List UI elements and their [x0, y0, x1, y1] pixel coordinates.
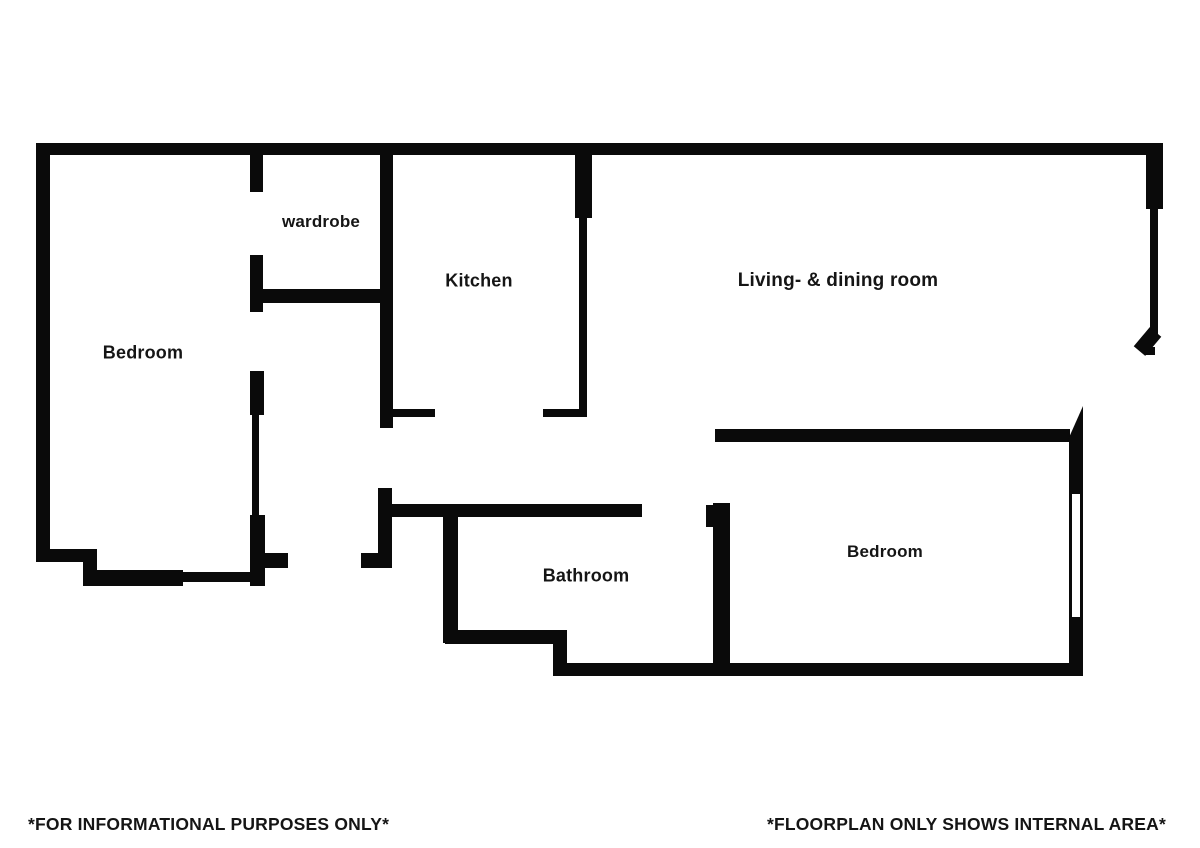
disclaimer-left: *FOR INFORMATIONAL PURPOSES ONLY*: [28, 814, 389, 835]
wall-segment: [250, 155, 263, 192]
wall-segment: [543, 409, 587, 417]
wall-segment: [443, 510, 458, 643]
wall-segment: [83, 570, 183, 586]
wall-segment: [36, 143, 1163, 155]
floorplan-canvas: Bedroom wardrobe Kitchen Living- & dinin…: [0, 0, 1200, 848]
wall-segment: [1146, 143, 1163, 209]
window-symbol: [1069, 494, 1083, 617]
wall-segment: [715, 429, 1070, 442]
door-leaf: [1067, 406, 1083, 442]
wall-segment: [575, 143, 592, 218]
wall-segment: [713, 503, 730, 663]
wall-segment: [252, 415, 259, 515]
wall-segment: [1069, 442, 1083, 494]
disclaimer-right: *FLOORPLAN ONLY SHOWS INTERNAL AREA*: [767, 814, 1166, 835]
wall-segment: [579, 218, 587, 412]
wall-segment: [250, 515, 265, 586]
wall-segment: [706, 505, 714, 527]
wall-segment: [378, 488, 392, 568]
room-label-bathroom: Bathroom: [543, 566, 630, 587]
room-label-bedroom-right: Bedroom: [847, 542, 923, 562]
wall-segment: [392, 504, 642, 517]
room-label-kitchen: Kitchen: [445, 271, 512, 292]
wall-segment: [380, 143, 393, 428]
wall-segment: [36, 143, 50, 562]
wall-segment: [265, 553, 288, 568]
room-label-wardrobe: wardrobe: [282, 212, 360, 232]
room-label-living-dining: Living- & dining room: [738, 270, 939, 292]
room-label-bedroom-left: Bedroom: [103, 343, 183, 364]
wall-segment: [250, 371, 264, 415]
wall-segment: [392, 409, 435, 417]
wall-segment: [250, 255, 263, 312]
wall-segment: [263, 289, 381, 303]
wall-segment: [445, 630, 567, 644]
wall-segment: [553, 630, 567, 676]
wall-segment: [1150, 209, 1158, 334]
wall-segment: [183, 572, 253, 582]
wall-segment: [361, 553, 379, 568]
wall-segment: [553, 663, 1083, 676]
